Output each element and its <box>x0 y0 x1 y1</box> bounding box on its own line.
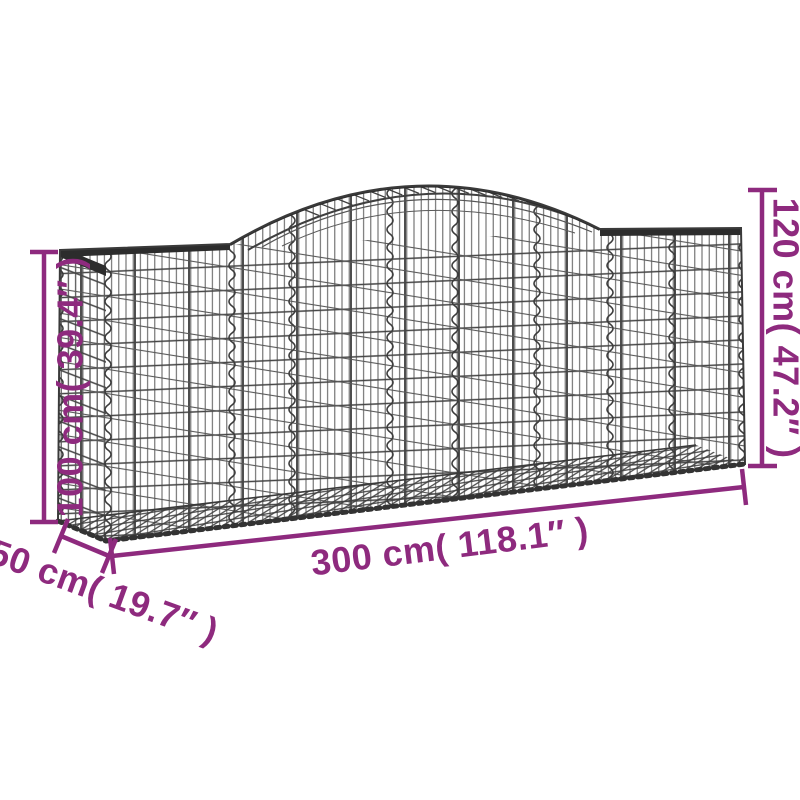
height-left-label: 100 cm( 39.4″ ) <box>50 257 91 518</box>
diagram-stage: 100 cm( 39.4″ ) 120 cm( 47.2″ ) 300 cm( … <box>0 0 800 800</box>
length-cap-right <box>742 469 746 505</box>
top-rim-band-right <box>600 225 741 236</box>
gabion-dimension-diagram: 100 cm( 39.4″ ) 120 cm( 47.2″ ) 300 cm( … <box>0 0 800 800</box>
dimension-height-left: 100 cm( 39.4″ ) <box>30 252 91 522</box>
dimension-height-right: 120 cm( 47.2″ ) <box>748 190 800 466</box>
gabion-basket <box>57 126 745 558</box>
height-right-label: 120 cm( 47.2″ ) <box>765 198 800 459</box>
